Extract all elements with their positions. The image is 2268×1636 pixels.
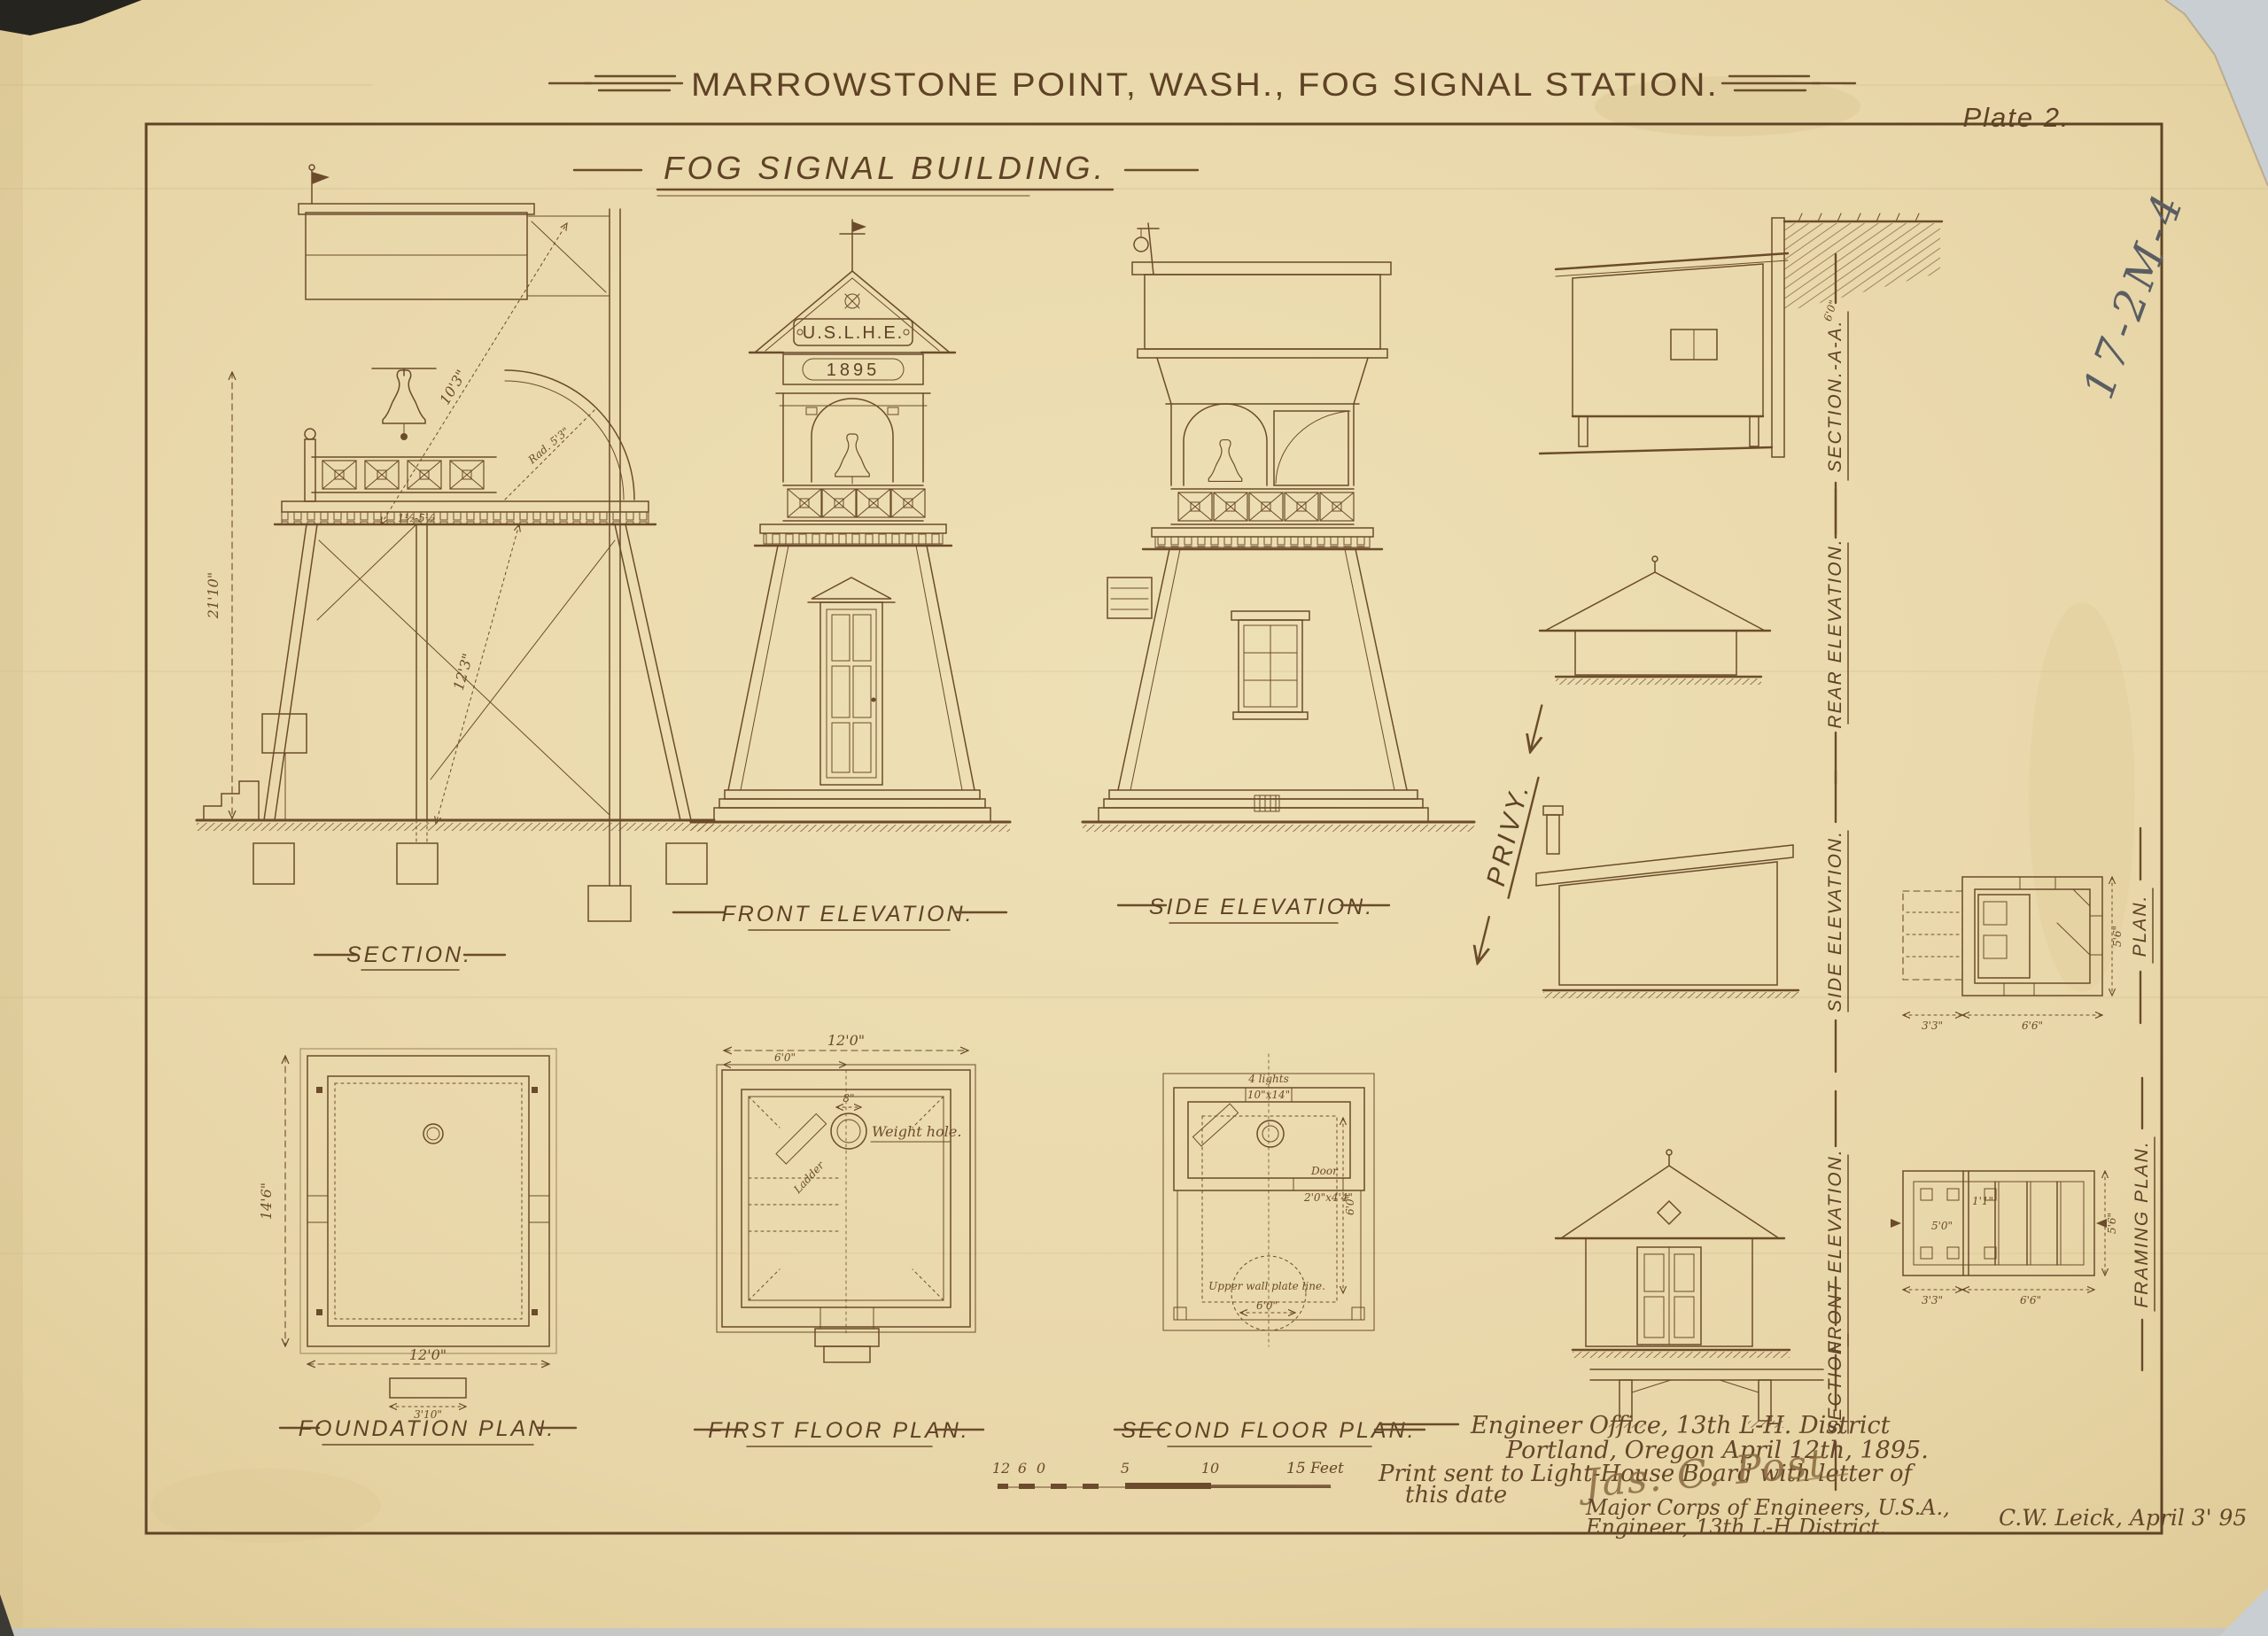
label-section: SECTION. bbox=[346, 942, 472, 967]
label-privy-rear-elevation: REAR ELEVATION. bbox=[1825, 538, 1845, 728]
scale-mark-0: 0 bbox=[1037, 1460, 1045, 1477]
dim-weight-hole: 8" bbox=[843, 1092, 854, 1105]
note-line-2: this date bbox=[1405, 1482, 1507, 1508]
dim-section-height: 21'10" bbox=[205, 572, 221, 619]
scale-mark-6: 6 bbox=[1018, 1460, 1027, 1477]
weight-hole-annotation: Weight hole. bbox=[872, 1123, 961, 1140]
dim-first-floor-width: 12'0" bbox=[827, 1032, 865, 1049]
label-foundation-plan: FOUNDATION PLAN. bbox=[299, 1416, 556, 1441]
plate-line-annotation: Upper wall plate line. bbox=[1208, 1280, 1325, 1292]
plate-dim-annotation: 6'0" bbox=[1256, 1299, 1278, 1312]
scale-mark-12: 12 bbox=[992, 1460, 1010, 1477]
tower-year: 1895 bbox=[827, 361, 881, 380]
plate-number: Plate 2. bbox=[1962, 102, 2070, 133]
subtitle-group: FOG SIGNAL BUILDING. bbox=[574, 150, 1198, 196]
drawing-sheet: MARROWSTONE POINT, WASH., FOG SIGNAL STA… bbox=[0, 0, 2268, 1636]
tower-plaque: U.S.L.H.E. bbox=[803, 323, 904, 343]
dim-privy-body: 6'6" bbox=[2022, 1020, 2043, 1032]
scale-mark-10: 10 bbox=[1201, 1460, 1219, 1477]
dim-first-floor-half: 6'0" bbox=[774, 1051, 796, 1064]
page-subtitle: FOG SIGNAL BUILDING. bbox=[664, 150, 1107, 186]
dim-brace: 1½-5½ bbox=[398, 512, 436, 524]
lights-annotation-1: 4 lights bbox=[1247, 1073, 1289, 1085]
engineer-line: Engineer, 13th L-H District. bbox=[1585, 1515, 1886, 1539]
label-privy-framing-plan: FRAMING PLAN. bbox=[2132, 1140, 2152, 1307]
label-privy-section-aa: SECTION.-A-A. bbox=[1825, 319, 1845, 472]
office-line: Engineer Office, 13th L-H. District bbox=[1470, 1412, 1891, 1439]
scale-end-label: 15 Feet bbox=[1286, 1460, 1344, 1477]
dim-framing-body: 6'6" bbox=[2020, 1294, 2041, 1306]
door-annotation-1: Door bbox=[1310, 1165, 1339, 1177]
scale-mark-5: 5 bbox=[1121, 1460, 1130, 1477]
bottom-edge bbox=[0, 1628, 2268, 1636]
label-privy-plan: PLAN. bbox=[2130, 895, 2150, 958]
blueprint-svg: MARROWSTONE POINT, WASH., FOG SIGNAL STA… bbox=[0, 0, 2268, 1636]
label-privy-side-elevation: SIDE ELEVATION. bbox=[1825, 830, 1845, 1012]
label-first-floor-plan: FIRST FLOOR PLAN. bbox=[708, 1418, 969, 1443]
drafter-note: C.W. Leick, April 3' 95 bbox=[1999, 1505, 2247, 1531]
dim-framing-porch: 3'3" bbox=[1922, 1294, 1943, 1306]
dim-framing-depth: 5'6" bbox=[2106, 1213, 2118, 1234]
dim-foundation-height: 14'6" bbox=[258, 1182, 275, 1220]
dim-privy-depth: 5'6" bbox=[2111, 926, 2124, 947]
dim-framing-span: 5'0" bbox=[1931, 1220, 1953, 1232]
label-front-elevation: FRONT ELEVATION. bbox=[721, 902, 974, 927]
label-side-elevation: SIDE ELEVATION. bbox=[1149, 895, 1374, 919]
dim-foundation-width: 12'0" bbox=[409, 1346, 447, 1363]
lights-annotation-2: 10"x14" bbox=[1247, 1089, 1290, 1101]
dim-framing-joist: 1'1" bbox=[1972, 1195, 1993, 1207]
page-title: MARROWSTONE POINT, WASH., FOG SIGNAL STA… bbox=[691, 66, 1719, 103]
dim-privy-porch: 3'3" bbox=[1922, 1020, 1943, 1032]
dim-second-floor: 6'0" bbox=[1344, 1194, 1356, 1215]
label-second-floor-plan: SECOND FLOOR PLAN. bbox=[1121, 1418, 1416, 1443]
